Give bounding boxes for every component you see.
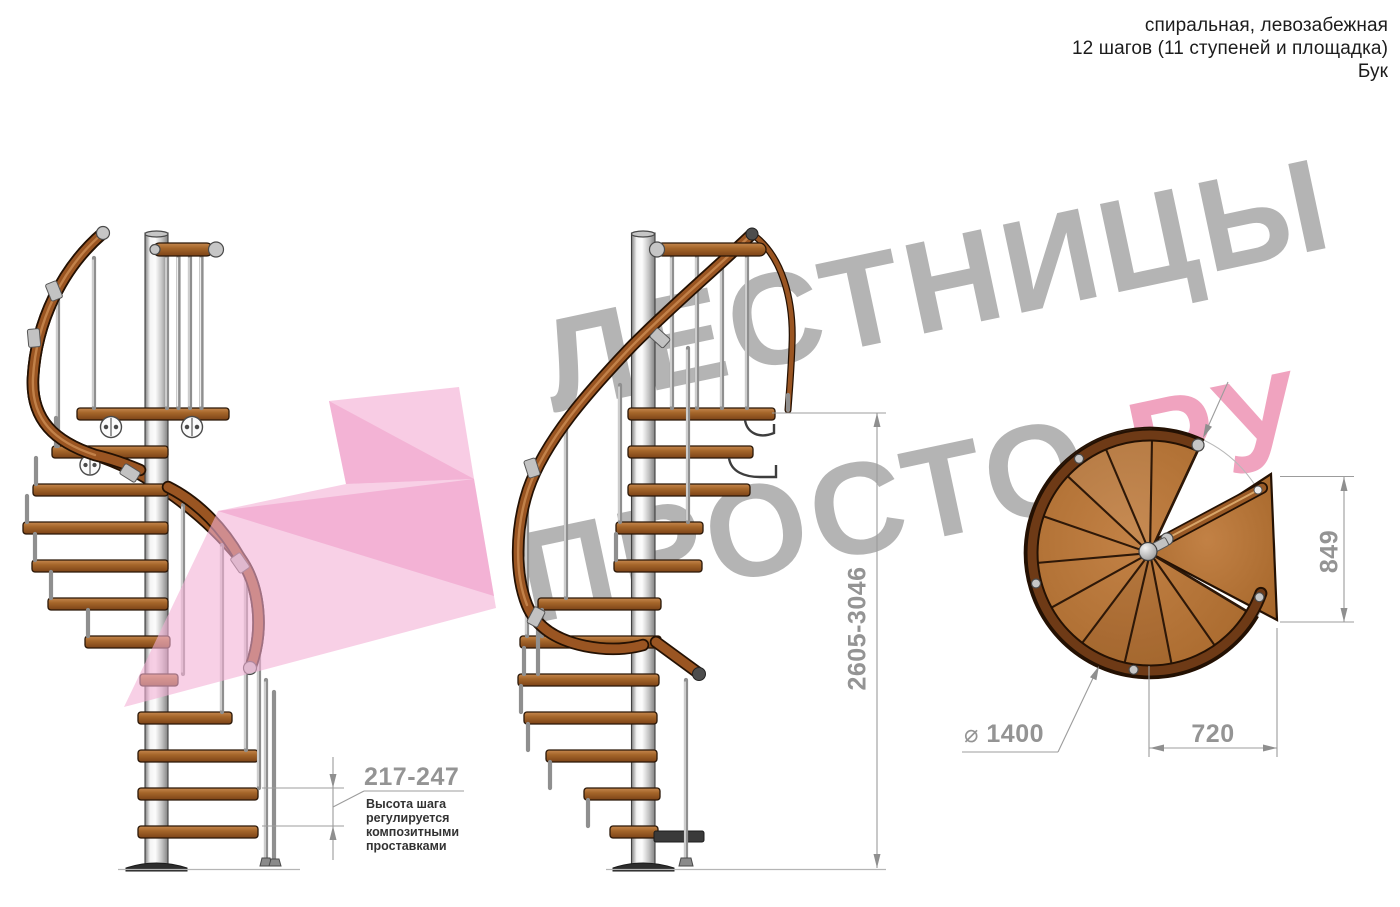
tread bbox=[610, 826, 658, 838]
tread bbox=[584, 788, 660, 800]
tread bbox=[138, 750, 258, 762]
front-platform-railing bbox=[650, 242, 767, 257]
diameter-symbol-icon: ⌀ bbox=[964, 720, 979, 748]
tread bbox=[138, 712, 232, 724]
bottom-step-bracket bbox=[654, 831, 704, 842]
rod-foot bbox=[269, 859, 281, 866]
handrail-end-cap bbox=[97, 227, 110, 240]
technical-drawing bbox=[0, 0, 1400, 907]
tread bbox=[32, 560, 168, 572]
left-platform-board bbox=[77, 408, 229, 420]
front-platform-board bbox=[628, 408, 775, 420]
dimension-step-height-value: 217-247 bbox=[364, 763, 459, 792]
plan-center-pole bbox=[1139, 543, 1157, 561]
rod-foot bbox=[679, 858, 693, 866]
handrail-end-cap bbox=[693, 668, 706, 681]
tread bbox=[546, 750, 657, 762]
front-far-rail bbox=[752, 234, 792, 410]
watermark-arrow bbox=[124, 387, 496, 707]
dimension-plan-depth-value: 849 bbox=[1316, 517, 1345, 587]
left-center-pole bbox=[145, 233, 168, 866]
front-pole-top-cap bbox=[632, 231, 655, 237]
header-type-line: спиральная, левозабежная bbox=[1072, 14, 1388, 37]
tread bbox=[33, 484, 168, 496]
dimension-plan-width-value: 720 bbox=[1178, 720, 1248, 749]
header-steps-line: 12 шагов (11 ступеней и площадка) bbox=[1072, 37, 1388, 60]
tread bbox=[538, 598, 661, 610]
tread bbox=[48, 598, 168, 610]
tread bbox=[628, 446, 753, 458]
header-block: спиральная, левозабежная 12 шагов (11 ст… bbox=[1072, 14, 1388, 83]
dimension-total-height-value: 2605-3046 bbox=[844, 559, 873, 699]
plan-view bbox=[1025, 428, 1277, 678]
left-pole-top-cap bbox=[145, 231, 168, 237]
tread bbox=[614, 560, 702, 572]
dimension-diameter-value: ⌀ 1400 bbox=[964, 720, 1044, 749]
tread bbox=[616, 522, 703, 534]
left-platform-railing bbox=[150, 242, 224, 257]
tread bbox=[518, 674, 659, 686]
side-view-front bbox=[518, 228, 886, 871]
tread bbox=[23, 522, 168, 534]
plan-handrail-cap bbox=[1192, 439, 1204, 451]
handrail-end-cap bbox=[746, 228, 758, 240]
header-material-line: Бук bbox=[1072, 60, 1388, 83]
staircase-drawing-page: { "header": { "type_line": "спиральная, … bbox=[0, 0, 1400, 907]
tread bbox=[138, 788, 258, 800]
tread bbox=[524, 712, 657, 724]
tread bbox=[138, 826, 258, 838]
dimension-step-height-note: Высота шага регулируется композитными пр… bbox=[366, 797, 466, 853]
diameter-value: 1400 bbox=[986, 720, 1044, 748]
